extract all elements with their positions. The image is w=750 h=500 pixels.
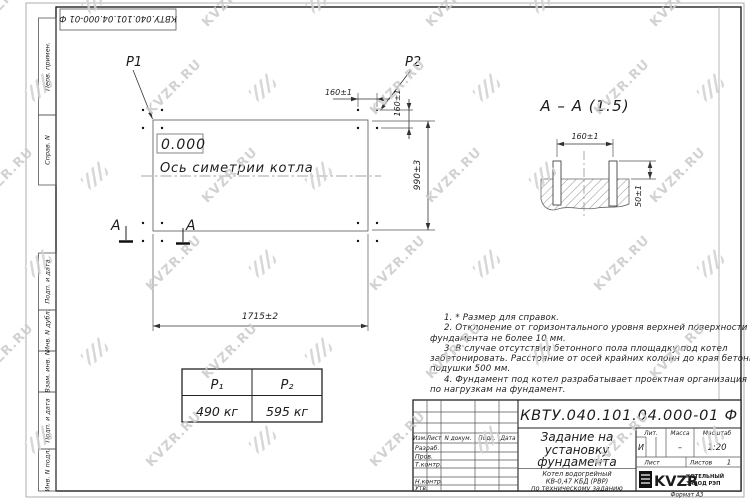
title-block: Изм. Лист N докум. Подп. Дата Разраб. Пр…	[413, 400, 741, 493]
row-approved-label: Утв.	[415, 485, 428, 492]
p1-leader-line	[133, 70, 153, 119]
doc-title-line3: фундамента	[537, 455, 616, 469]
drawing-canvas: КВТУ.040.101.04.000-01 Ф Перв. примен. С…	[0, 0, 750, 500]
dim-text: 1715±2	[242, 312, 278, 322]
row-tcontrol-label: Т.контр.	[415, 462, 442, 469]
load-point-2-label: P2	[405, 55, 421, 70]
load-table-value-1: 490 кг	[196, 404, 238, 419]
kvzr-logo-caption-2: ЗАВОД РЭП	[686, 481, 720, 487]
note-line: по нагрузкам на фундамент.	[430, 385, 750, 395]
note-line: подушки 500 мм.	[430, 364, 750, 374]
kvzr-logo-caption-1: КОТЕЛЬНЫЙ	[686, 472, 724, 480]
row-developed-label: Разраб.	[415, 444, 439, 452]
col-list-header: Лист	[426, 436, 442, 442]
notes-block: 1. * Размер для справок. 2. Отклонение о…	[430, 313, 750, 395]
sheets-value: 1	[727, 459, 731, 467]
doc-subtitle-line3: по техническому заданию	[531, 485, 623, 493]
load-table-header-1: P₁	[210, 378, 223, 393]
lit-value: И	[638, 443, 644, 452]
stamp-label: Взам. инв. N	[44, 350, 52, 392]
note-line: 3. В случае отсутствия бетонного пола пл…	[430, 344, 750, 354]
top-doc-number-rotated: КВТУ.040.101.04.000-01 Ф	[59, 13, 177, 23]
stamp-label: Справ. N	[44, 135, 52, 165]
section-letter: А	[185, 218, 196, 234]
dim-text: 990±3	[413, 160, 423, 191]
stamp-label: Инв. N подл.	[44, 449, 52, 492]
sheets-label: Листов	[689, 460, 713, 467]
dim-text: 160±1	[393, 89, 402, 116]
scale-value: 1:20	[707, 443, 726, 453]
elevation-mark: 0.000	[161, 137, 206, 153]
anchor-bolt-left	[553, 161, 561, 205]
lit-label: Лит.	[643, 430, 658, 437]
load-point-1-label: P1	[126, 55, 142, 70]
load-table-header-2: P₂	[280, 378, 293, 393]
note-line: 4. Фундамент под котел разрабатывает про…	[430, 375, 750, 385]
section-letter: А	[110, 218, 121, 234]
col-date-header: Дата	[499, 436, 515, 442]
foundation-plan-view: P1 P2 160±1 160±1 990±3	[110, 55, 435, 331]
section-view-title: А – А (1:5)	[539, 97, 629, 115]
col-izm-header: Изм.	[413, 436, 427, 442]
dim-text: 50±1	[634, 185, 643, 207]
scale-label: Масштаб	[703, 430, 732, 437]
dim-depth	[372, 121, 435, 230]
col-doc-header: N докум.	[445, 436, 472, 442]
stamp-label: Перв. примен.	[44, 42, 52, 91]
drawing-sheet: КВТУ.040.101.04.000-01 Ф Перв. примен. С…	[0, 0, 750, 500]
load-table-value-2: 595 кг	[266, 404, 308, 419]
dim-text: 160±1	[571, 132, 598, 141]
mass-label: Масса	[670, 430, 689, 437]
note-line: фундамента не более 10 мм.	[430, 334, 750, 344]
note-line: забетонировать. Расстояние от осей крайн…	[430, 354, 750, 364]
axis-caption: Ось симетрии котла	[160, 161, 313, 176]
format-label: Формат А3	[670, 493, 703, 499]
note-line: 2. Отклонение от горизонтального уровня …	[430, 323, 750, 333]
anchor-bolt-right	[609, 161, 617, 206]
stamp-label: Подп. и дата	[44, 259, 52, 303]
doc-number: КВТУ.040.101.04.000-01 Ф	[520, 408, 738, 424]
load-table: P₁ P₂ 490 кг 595 кг	[182, 369, 322, 422]
dim-section-bolt-spacing	[557, 139, 613, 157]
stamp-label: Инв. N дубл.	[44, 309, 52, 352]
stamp-label: Подп. и дата	[44, 398, 52, 442]
section-view-a-a: А – А (1:5) 160±1 50±1	[539, 97, 656, 217]
mass-value: –	[678, 443, 682, 452]
row-checked-label: Пров.	[415, 454, 433, 461]
dim-text: 160±1	[325, 88, 352, 97]
note-line: 1. * Размер для справок.	[430, 313, 750, 323]
left-margin-stamp-labels: Перв. примен. Справ. N Подп. и дата Инв.…	[44, 42, 52, 491]
doc-title-line1: Задание на	[541, 430, 614, 444]
col-sign-header: Подп.	[478, 436, 496, 442]
sheet-label: Лист	[643, 460, 660, 467]
